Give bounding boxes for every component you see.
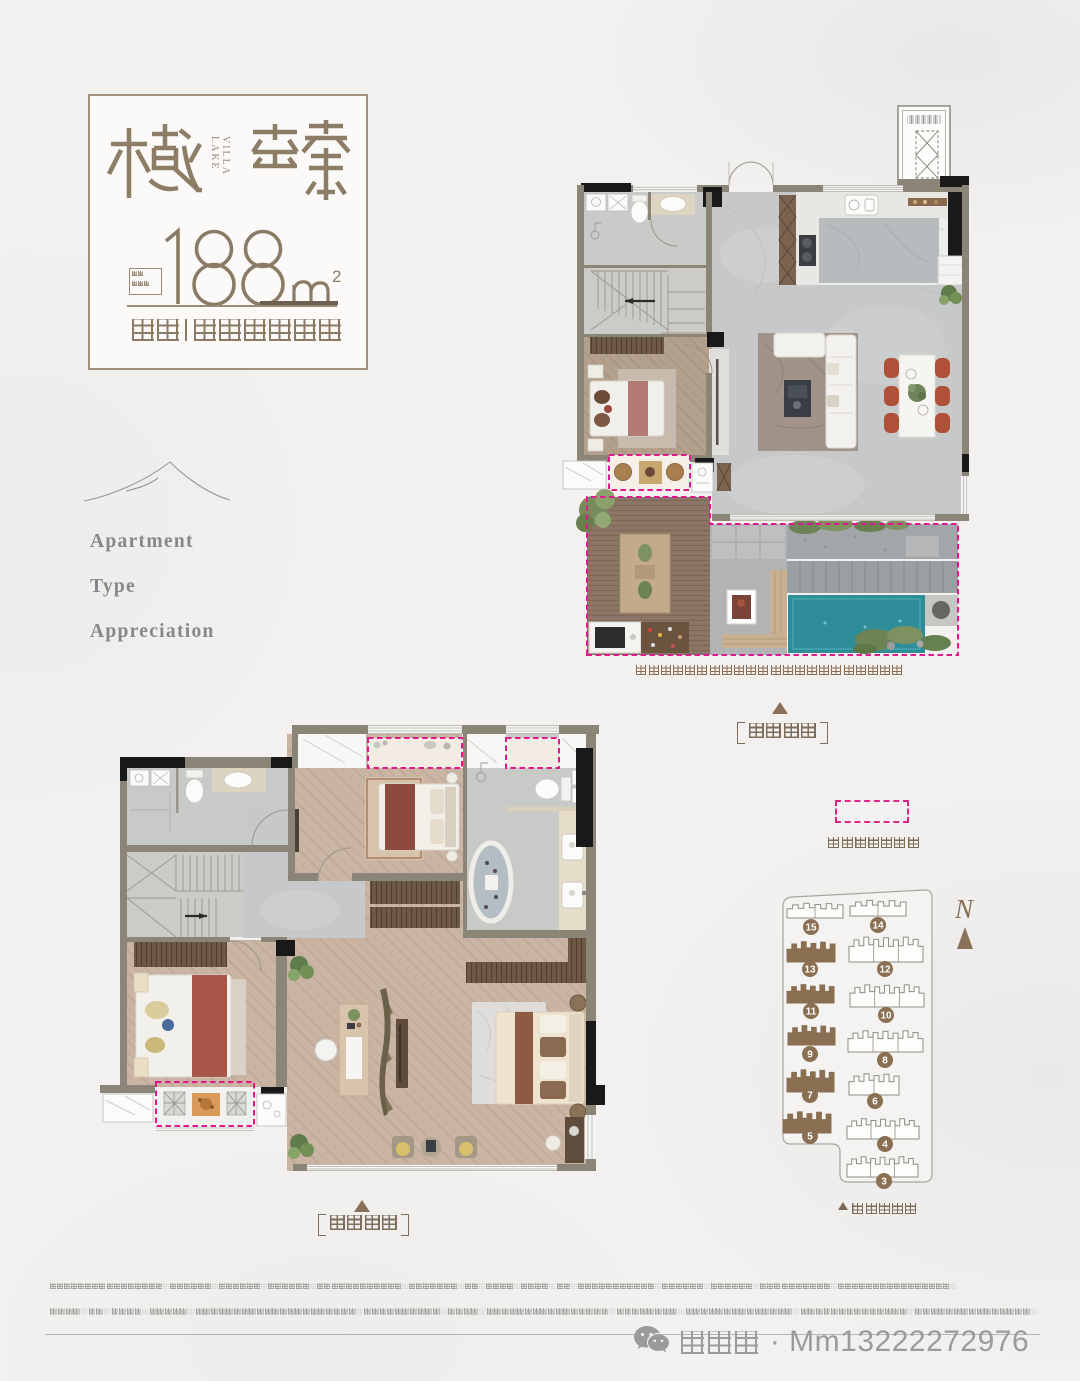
svg-text:6: 6: [872, 1097, 878, 1108]
svg-text:13: 13: [804, 965, 816, 976]
svg-text:4: 4: [882, 1140, 888, 1151]
svg-text:11: 11: [806, 1007, 817, 1018]
svg-text:10: 10: [880, 1011, 892, 1022]
svg-text:2: 2: [332, 267, 341, 286]
svg-text:14: 14: [872, 921, 884, 932]
svg-text:N: N: [954, 894, 975, 924]
svg-text:7: 7: [807, 1091, 813, 1102]
svg-text:9: 9: [807, 1050, 813, 1061]
svg-text:5: 5: [807, 1132, 813, 1143]
svg-text:3: 3: [881, 1177, 887, 1188]
svg-text:15: 15: [805, 923, 817, 934]
svg-text:12: 12: [879, 965, 891, 976]
svg-text:8: 8: [882, 1056, 888, 1067]
